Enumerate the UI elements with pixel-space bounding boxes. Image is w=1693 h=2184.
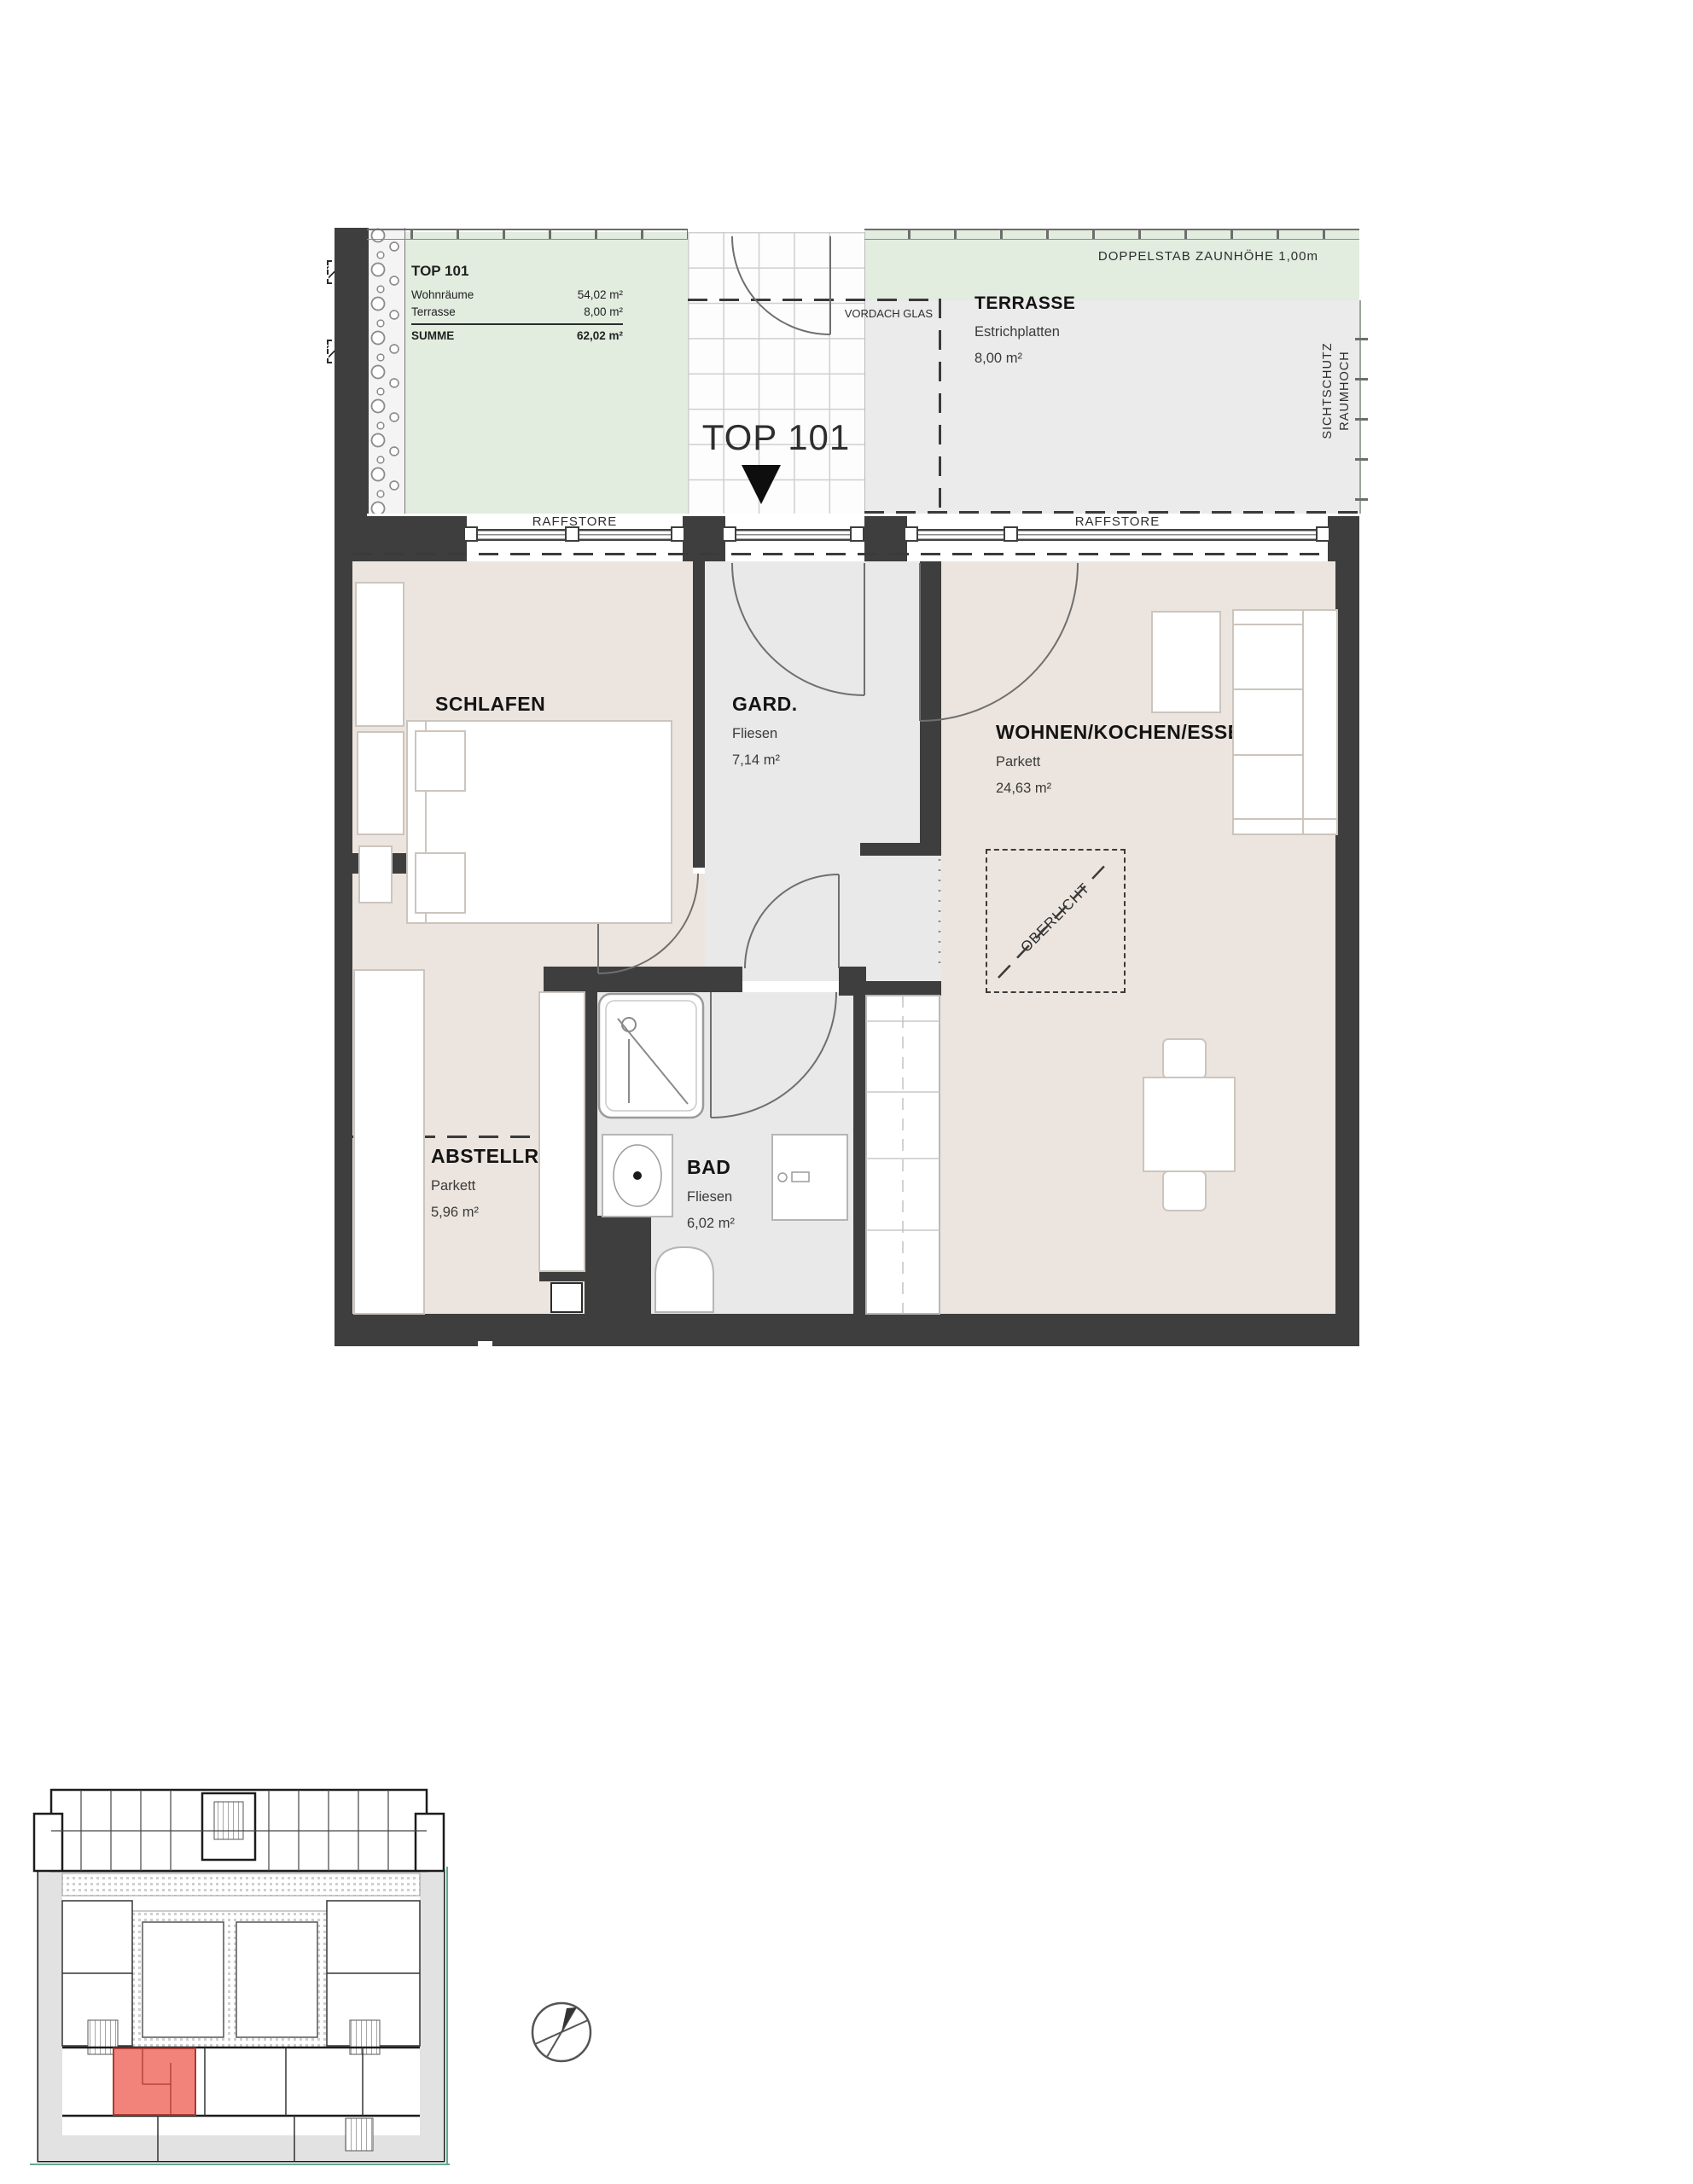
floorplan-sheet: TOP 101 Wohnräume 54,02 m² Terrasse 8,00… bbox=[0, 0, 1693, 2184]
bedroom-furniture bbox=[356, 583, 672, 923]
plan-linework bbox=[0, 0, 1693, 1450]
skylight-diagonal bbox=[998, 861, 1109, 978]
kitchen-counter bbox=[866, 996, 940, 1314]
living-furniture bbox=[1143, 610, 1337, 1211]
highlighted-unit-top101 bbox=[113, 2048, 195, 2115]
north-compass-icon bbox=[522, 1989, 603, 2075]
door-swings bbox=[598, 236, 1078, 1118]
storage-shelves bbox=[354, 970, 585, 1314]
site-overview-map bbox=[13, 1781, 465, 2184]
bathroom-fixtures bbox=[599, 994, 847, 1312]
